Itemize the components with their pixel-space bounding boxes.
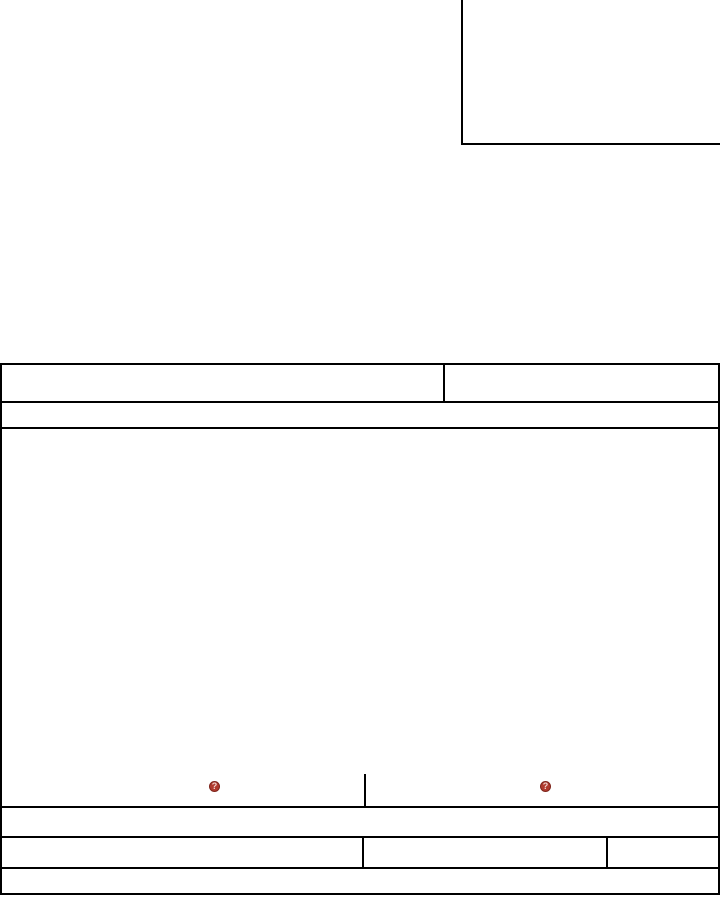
signature-column-divider (364, 774, 366, 806)
header-left-cell (2, 365, 445, 401)
document-page: ? ? (0, 0, 720, 912)
table-row (2, 365, 718, 401)
table-row (2, 401, 718, 427)
main-body-box: ? ? (2, 427, 718, 806)
form-table: ? ? (0, 363, 720, 895)
table-row (2, 836, 718, 867)
header-right-cell (445, 365, 718, 401)
top-right-open-box (461, 0, 720, 145)
missing-image-icon: ? (209, 781, 220, 792)
table-row (2, 806, 718, 836)
table-row (2, 867, 718, 893)
bottom-row-cell-3 (608, 838, 718, 867)
missing-image-icon: ? (540, 781, 551, 792)
bottom-row-cell-1 (2, 838, 364, 867)
bottom-row-cell-2 (364, 838, 608, 867)
